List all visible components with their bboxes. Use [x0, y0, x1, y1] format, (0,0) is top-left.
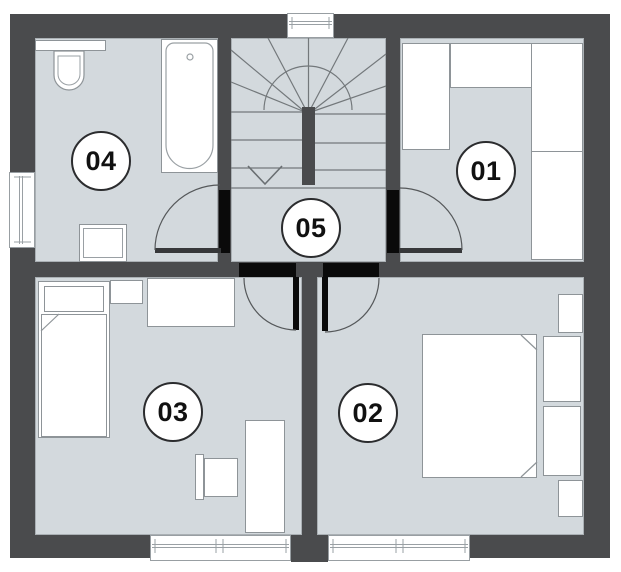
nightstand-bottom: [558, 480, 583, 517]
wardrobe-left: [402, 43, 450, 150]
wardrobe-divider: [532, 151, 582, 152]
room-label-02-text: 02: [352, 398, 383, 429]
door-leaf-room02: [322, 277, 328, 331]
wardrobe-top: [450, 43, 532, 88]
outer-wall-left: [10, 14, 35, 558]
wardrobe-right: [531, 43, 583, 260]
door-leaf-room03: [293, 277, 299, 330]
window-bathroom: [9, 172, 35, 248]
shelf: [110, 280, 143, 304]
room-label-05-text: 05: [295, 213, 326, 244]
single-bed-duvet: [41, 314, 107, 437]
doorway-room02: [323, 263, 379, 277]
chair-seat: [204, 458, 238, 497]
wall-window-pier: [291, 535, 328, 562]
nightstand-top: [558, 294, 583, 333]
door-leaf-room01: [399, 248, 462, 253]
room-label-04-text: 04: [85, 146, 116, 177]
single-bed-pillow: [44, 286, 104, 312]
washing-machine-inner: [83, 228, 123, 258]
doorway-bathroom: [219, 190, 230, 253]
door-leaf-bathroom: [155, 248, 221, 253]
window-room03: [150, 535, 291, 561]
room-label-01: 01: [456, 141, 516, 201]
window-room02: [328, 535, 470, 561]
wall-mid-horizontal: [35, 262, 584, 277]
double-bed-pillow-bottom: [543, 406, 581, 476]
room-label-05: 05: [281, 198, 341, 258]
room-label-03: 03: [143, 382, 203, 442]
outer-wall-right: [584, 14, 610, 558]
bathtub: [161, 39, 218, 173]
double-bed-pillow-top: [543, 336, 581, 402]
floor-plan: 04 01 05 03 02: [0, 0, 621, 572]
doorway-room03: [239, 263, 296, 277]
room-label-01-text: 01: [470, 156, 501, 187]
washing-machine: [79, 224, 127, 262]
doorway-room01: [387, 190, 399, 253]
desk: [147, 278, 235, 327]
toilet-cistern: [35, 40, 106, 51]
window-stairs: [287, 13, 334, 38]
room-label-04: 04: [71, 131, 131, 191]
double-bed-mattress: [422, 334, 537, 478]
side-table: [245, 420, 285, 533]
room-label-03-text: 03: [157, 397, 188, 428]
wall-room03-room02: [302, 277, 317, 535]
chair-backrest: [195, 454, 204, 500]
room-label-02: 02: [338, 383, 398, 443]
